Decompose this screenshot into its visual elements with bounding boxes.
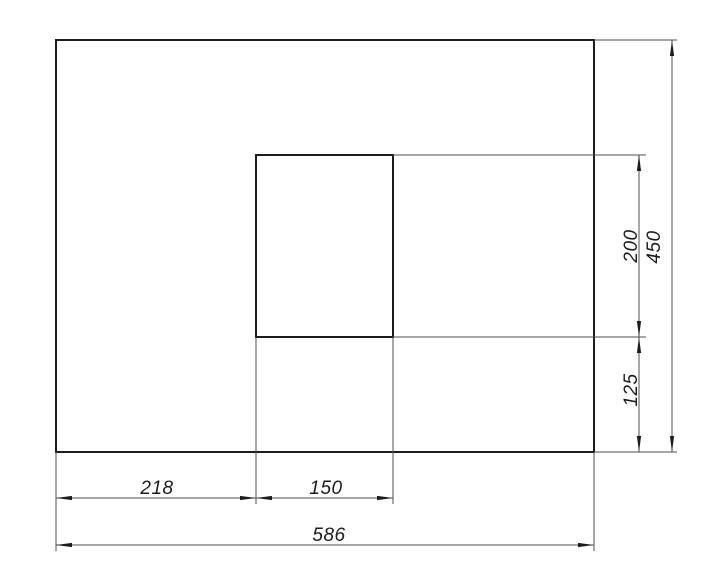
dimension-width-total: 586 — [56, 525, 594, 547]
dim-label-450: 450 — [644, 230, 665, 263]
dimension-height-lower-segment: 125 — [621, 337, 642, 452]
extension-lines — [56, 40, 677, 551]
drawing-canvas: 218 150 586 200 125 — [0, 0, 701, 571]
dimension-height-total: 450 — [644, 40, 674, 452]
arrow-down-icon — [637, 321, 641, 337]
arrow-up-icon — [637, 337, 641, 353]
dimension-width-inner: 150 — [256, 478, 393, 500]
dim-label-200: 200 — [621, 229, 642, 263]
inner-rectangle — [256, 155, 393, 337]
arrow-down-icon — [637, 436, 641, 452]
outer-rectangle — [56, 40, 594, 452]
dim-label-150: 150 — [309, 478, 342, 499]
arrow-up-icon — [637, 155, 641, 171]
dim-label-125: 125 — [621, 373, 642, 406]
arrow-left-icon — [256, 496, 272, 500]
dim-label-586: 586 — [312, 525, 345, 546]
dim-label-218: 218 — [139, 478, 173, 499]
dimension-height-inner: 200 — [621, 155, 642, 337]
arrow-down-icon — [670, 436, 674, 452]
arrow-up-icon — [670, 40, 674, 56]
technical-drawing: 218 150 586 200 125 — [0, 0, 701, 571]
arrow-right-icon — [377, 496, 393, 500]
arrow-right-icon — [578, 543, 594, 547]
dimension-width-left-segment: 218 — [56, 478, 256, 500]
arrow-right-icon — [240, 496, 256, 500]
arrow-left-icon — [56, 543, 72, 547]
arrow-left-icon — [56, 496, 72, 500]
